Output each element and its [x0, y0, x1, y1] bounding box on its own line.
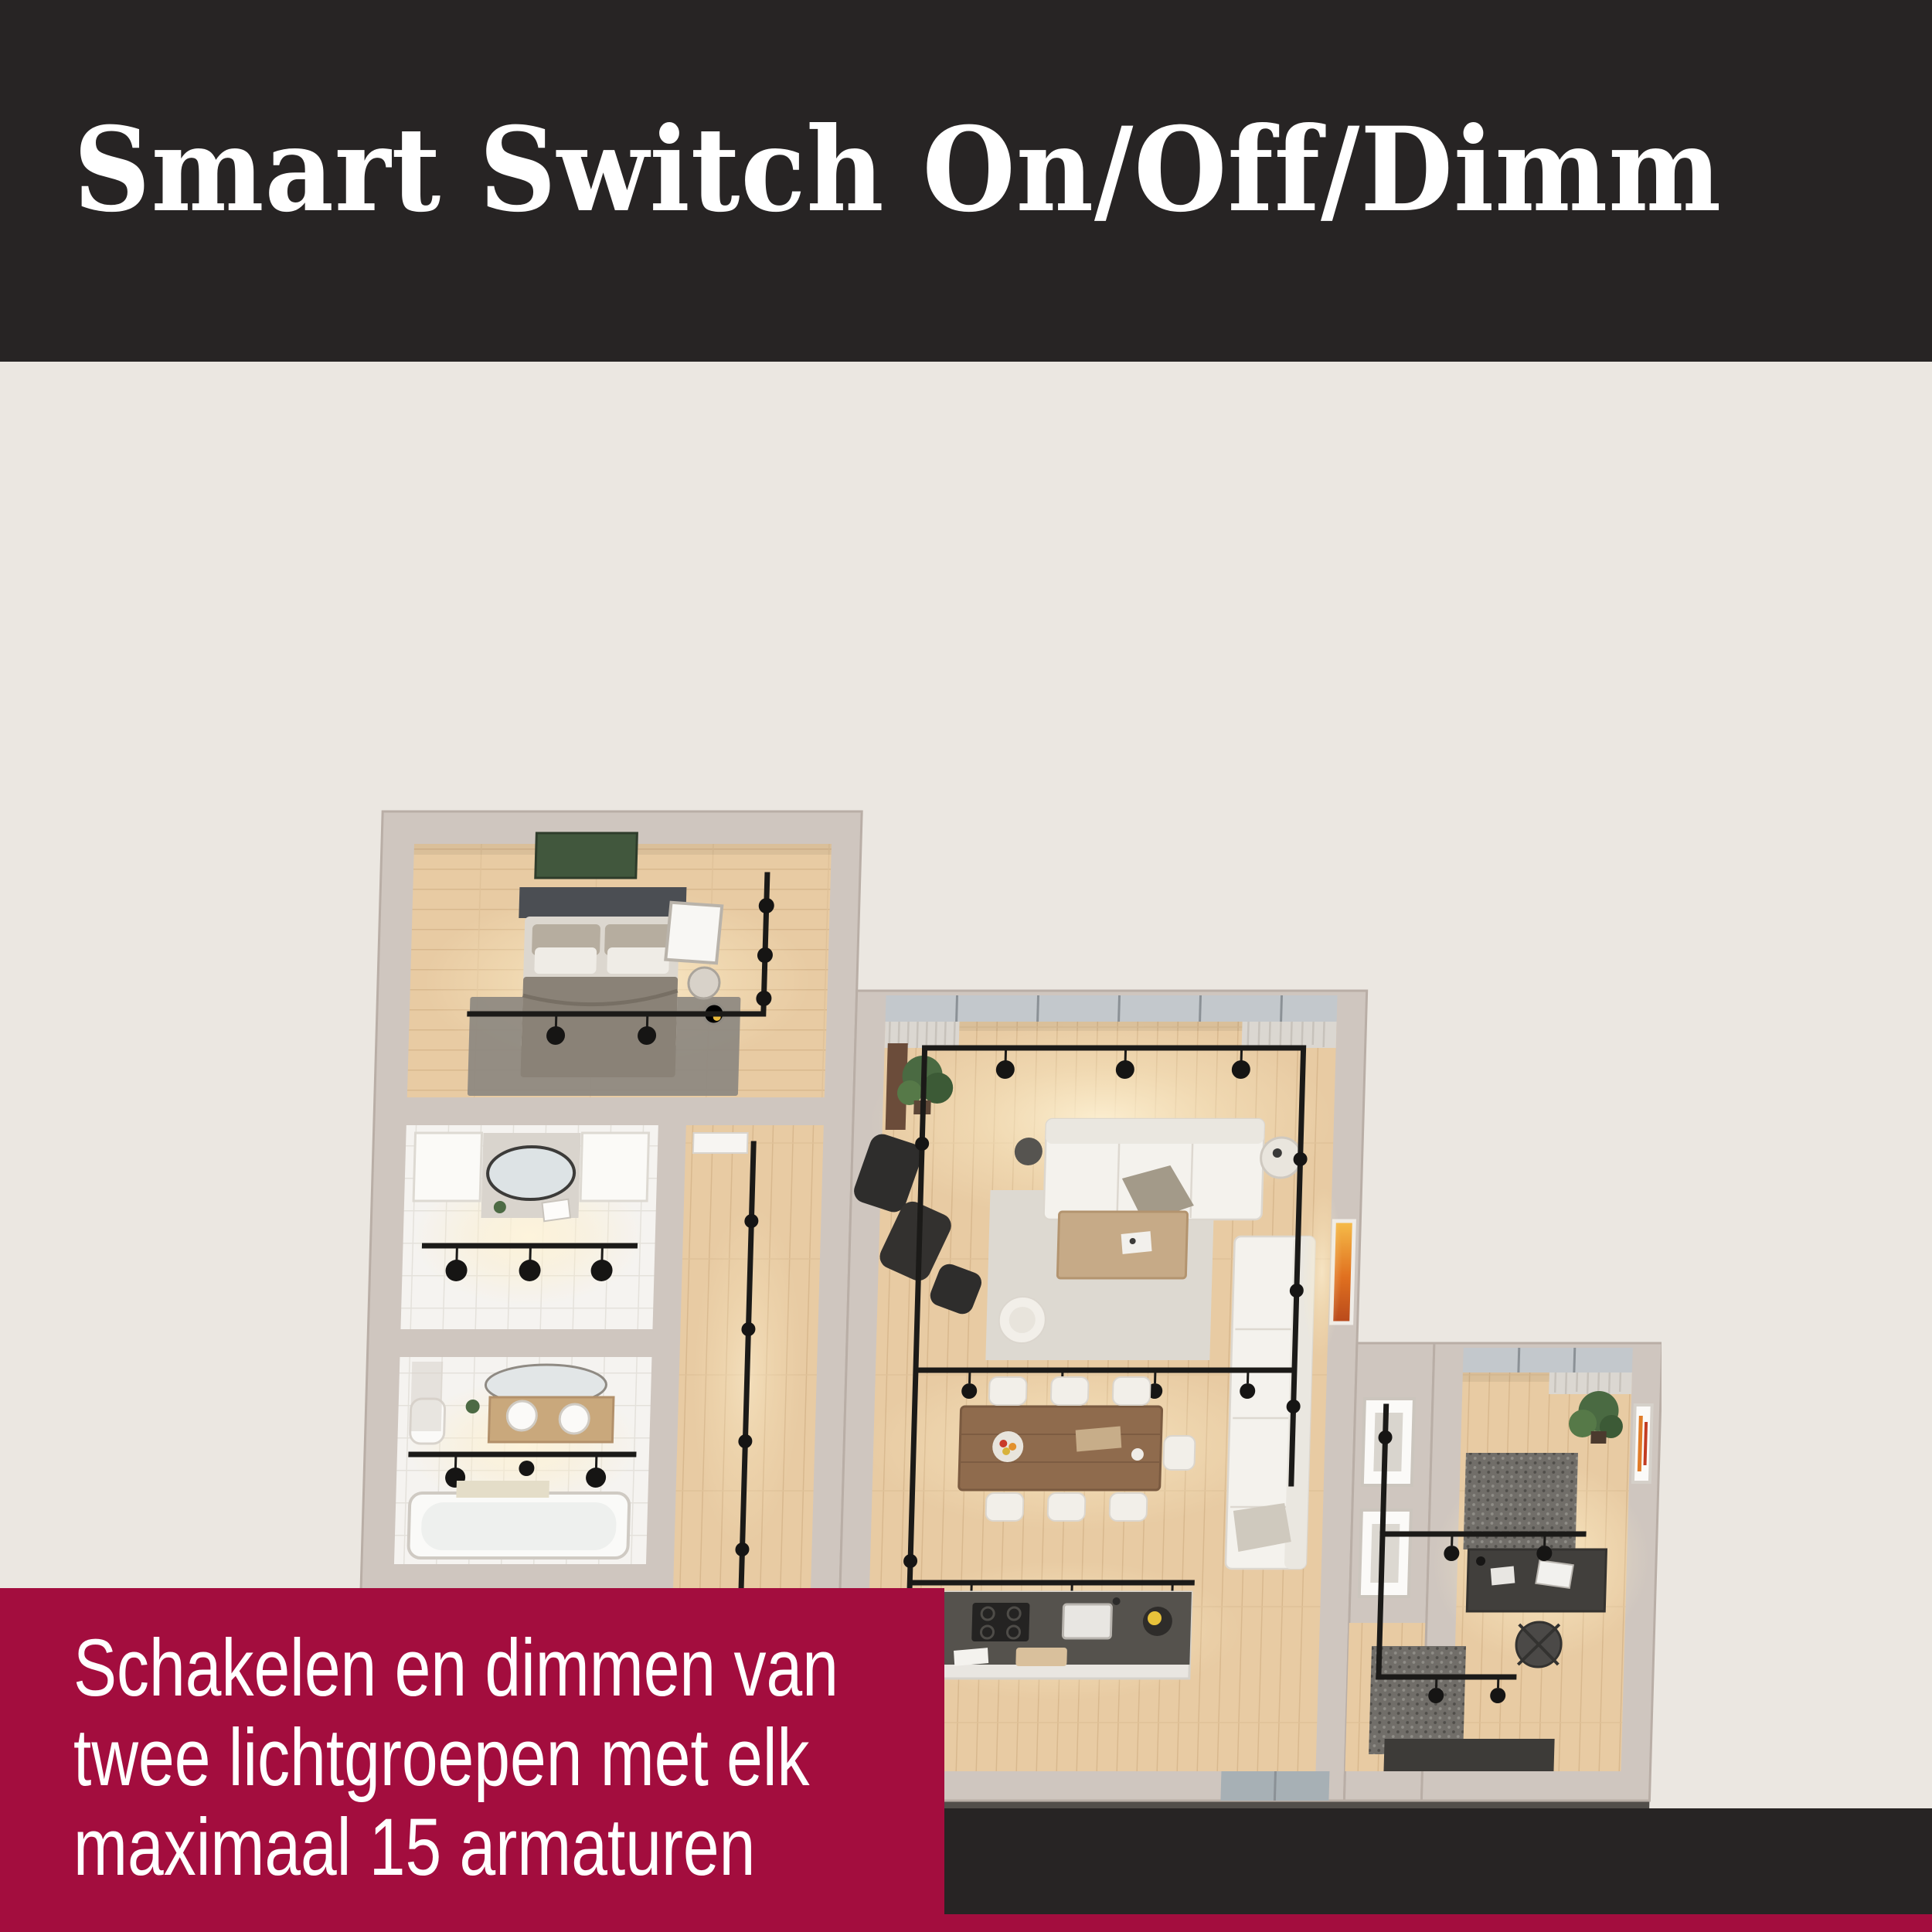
caption-line: twee lichtgroepen met elk	[73, 1713, 838, 1803]
office-sideboard	[1383, 1739, 1554, 1771]
board	[1076, 1427, 1122, 1452]
curtain	[1242, 1022, 1337, 1048]
dining-chair	[1163, 1436, 1195, 1470]
bath-cabinet	[580, 1133, 648, 1201]
bedside-table	[688, 968, 719, 998]
office-chair	[1515, 1622, 1562, 1667]
bath-cabinet	[413, 1133, 481, 1201]
cooktop	[971, 1603, 1029, 1641]
bedroom-frame	[665, 903, 722, 963]
sink	[1063, 1604, 1111, 1638]
caption-banner: Schakelen en dimmen van twee lichtgroepe…	[0, 1588, 944, 1932]
bath-mat	[456, 1481, 549, 1498]
coffee-table	[1057, 1212, 1187, 1278]
caption-line: Schakelen en dimmen van	[73, 1624, 838, 1713]
dining-chair	[1113, 1377, 1151, 1405]
cutting-board	[1015, 1648, 1067, 1666]
bathroom-upper	[400, 1125, 658, 1329]
title-banner: Smart Switch On/Off/Dimm	[0, 0, 1932, 362]
bedroom	[407, 833, 832, 1097]
caption-line: maximaal 15 armaturen	[73, 1803, 838, 1893]
dining-chair	[1051, 1377, 1089, 1405]
dining-chair	[1110, 1493, 1148, 1521]
caption-text: Schakelen en dimmen van twee lichtgroepe…	[73, 1624, 838, 1893]
laptop	[1536, 1560, 1573, 1588]
door-leaf	[693, 1133, 748, 1153]
dining-table	[959, 1406, 1162, 1490]
sofa-top	[1043, 1119, 1264, 1223]
dining-chair	[986, 1493, 1024, 1521]
office-rug	[1369, 1646, 1466, 1754]
bed	[515, 887, 687, 1077]
office-desk	[1467, 1549, 1606, 1611]
bottom-red-strip	[0, 1914, 1932, 1932]
basin	[507, 1401, 537, 1430]
dining-chair	[989, 1377, 1027, 1405]
dining-chair	[1048, 1493, 1086, 1521]
oval-mirror	[487, 1147, 575, 1199]
kitchen-island	[911, 1583, 1192, 1679]
bottom-dark-band	[944, 1808, 1932, 1914]
basin	[560, 1404, 590, 1434]
towel-ladder	[410, 1362, 444, 1431]
bathroom-lower	[394, 1357, 651, 1564]
page-title: Smart Switch On/Off/Dimm	[73, 112, 1722, 228]
bedroom-art	[536, 833, 638, 878]
